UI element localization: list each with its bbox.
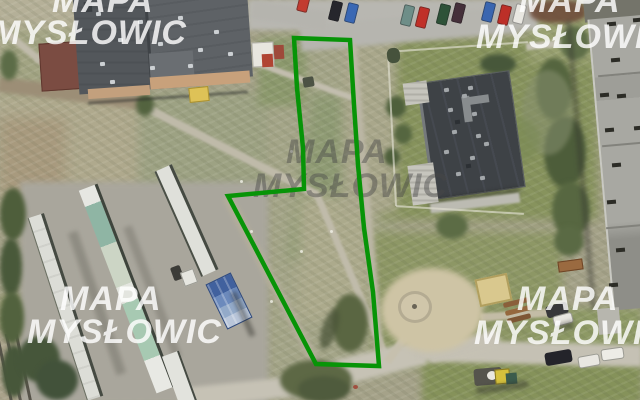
blue-shed-shadow [230, 291, 255, 337]
roof-vent [462, 94, 468, 99]
junk-shadow [476, 380, 528, 394]
tree [0, 50, 18, 80]
stone-dot [330, 230, 333, 233]
tree-in-parcel [332, 294, 368, 352]
tree-shadow [316, 307, 343, 352]
block-vent [607, 200, 616, 205]
parcel-green-streak [288, 91, 376, 268]
roof-vent [150, 66, 155, 70]
rail [0, 334, 13, 400]
tree [554, 226, 584, 256]
tree [0, 292, 24, 344]
scrub-center [138, 92, 273, 204]
block-vent [633, 18, 640, 23]
field-left-of-parcel [215, 192, 310, 400]
bush [394, 124, 412, 144]
watermark-center: MYSŁOWIC [253, 169, 448, 203]
block-vent [607, 22, 616, 27]
roof-vent [228, 52, 233, 56]
block-walkway [526, 37, 590, 51]
roof-vent-dark [455, 120, 461, 125]
roof-vent [118, 38, 123, 42]
road-bottom [178, 376, 302, 400]
parcel-interior-grass [268, 32, 393, 377]
yard-lane-shadow [68, 230, 126, 375]
stone-dot [270, 300, 273, 303]
complex-chimney [84, 2, 93, 13]
tree [560, 26, 590, 60]
footpath-playground-spur [384, 304, 431, 365]
watermark-bottom-left: MYSŁOWIC [27, 315, 222, 349]
footpath-neck-cross [253, 59, 353, 100]
tractor [170, 265, 184, 282]
garage-yard-gravel [20, 182, 268, 400]
watermark-top-right: MAPA [519, 0, 621, 18]
bush [386, 96, 406, 118]
stone-dot [300, 250, 303, 253]
block-vent [612, 163, 621, 168]
roof-vent [472, 112, 478, 117]
block-roof-seam [606, 221, 640, 229]
complex-roof-west [73, 0, 154, 94]
block-roof-top-dark [583, 0, 640, 23]
watermark-top-left: MYSŁOWIC [0, 16, 187, 50]
roof-vent [444, 88, 450, 93]
complex-roof-seam [144, 0, 153, 86]
block-vent [600, 93, 609, 98]
car-suv-dark [544, 349, 573, 366]
school-west-edge [416, 80, 435, 191]
car [344, 2, 360, 24]
roof-vent [100, 62, 105, 66]
white-shed [251, 41, 274, 67]
grass-topright [528, 0, 640, 64]
yellow-container [188, 86, 209, 103]
tree [0, 238, 22, 296]
tree-red-topright [530, 0, 586, 23]
school-roof-mark [461, 96, 473, 123]
complex-section-mid [149, 51, 195, 90]
scrub-below-parcel [280, 360, 352, 400]
block-roof-seam [598, 69, 640, 77]
roof-vent [452, 130, 458, 135]
roof-vent [198, 48, 203, 52]
grass-below-block [532, 308, 640, 356]
stone-dot [250, 230, 253, 233]
tree [436, 213, 468, 239]
block-vent [616, 248, 625, 253]
school-roof-mark [463, 94, 490, 106]
log [507, 313, 531, 324]
trailer [180, 268, 198, 287]
roof-vent [138, 20, 143, 24]
watermark-bottom-left: MAPA [60, 282, 162, 316]
block-vent [611, 58, 620, 63]
playground-sand [381, 268, 483, 352]
hedge-school-north [480, 54, 516, 74]
watermark-top-right: MYSŁOWIC [476, 20, 640, 54]
garage-row-e [162, 351, 198, 400]
dirt-road-west [0, 77, 146, 110]
roof-vent [444, 150, 450, 155]
footpath [34, 55, 75, 89]
school-roof [418, 70, 526, 200]
log [505, 305, 531, 316]
footpath-west-boundary [223, 194, 321, 366]
car [400, 4, 416, 27]
grass-above-tracks [0, 295, 62, 360]
roof-vent [214, 30, 219, 34]
dark-object-on-path [302, 76, 315, 88]
red-object [353, 385, 358, 389]
roof-vent [158, 42, 163, 46]
school-lawn [380, 38, 598, 220]
stone-ring-center [412, 304, 417, 309]
complex-south-shadow [88, 90, 248, 104]
track-ballast [0, 330, 36, 400]
tree [36, 360, 78, 400]
scrub-midleft [0, 95, 155, 210]
car [415, 6, 431, 29]
road-bottom [289, 339, 427, 397]
rail [5, 333, 22, 400]
footpath-diagonal-south [314, 194, 392, 364]
watermark-bottom-right: MYSŁOWIC [474, 316, 640, 350]
tree [0, 188, 26, 240]
watermark-top-left: MAPA [52, 0, 154, 18]
rail [15, 333, 32, 400]
complex-facade-tan [150, 71, 251, 90]
car [481, 1, 497, 23]
car [296, 0, 311, 13]
car-white [552, 312, 574, 328]
tree [2, 345, 26, 397]
van-dark [545, 301, 569, 318]
block-west-shadow [565, 20, 596, 309]
school-steps-west [407, 162, 438, 205]
roof-vent-dark [466, 164, 472, 169]
roof-vent [448, 108, 454, 113]
parcel-boundary [228, 38, 379, 366]
parking-asphalt [299, 7, 518, 52]
fence [387, 52, 397, 206]
tree [18, 336, 60, 382]
garage-row-a [28, 213, 103, 400]
bench [557, 258, 583, 272]
scrub-below-parcel [298, 376, 350, 400]
roof-vent [484, 142, 490, 147]
neck-grass-hump [258, 38, 306, 106]
parcel-pale-patch [298, 195, 373, 320]
school-sidewalk [430, 193, 521, 214]
car [328, 0, 344, 22]
red-shed [274, 45, 285, 60]
junk-pile [473, 367, 502, 386]
car-white [577, 353, 601, 369]
lawn-shade [460, 80, 490, 110]
bush [136, 94, 154, 116]
bush [384, 148, 400, 166]
roof-vent [470, 156, 476, 161]
footpath-to-block [480, 309, 550, 322]
ground-base [0, 0, 640, 400]
terrain-texture [0, 0, 640, 400]
parking-asphalt [251, 1, 328, 29]
roof-vent [456, 172, 462, 177]
watermark-center: MAPA [286, 135, 388, 169]
fence [396, 205, 524, 215]
car [497, 4, 513, 26]
footpath-diagonal-main [138, 101, 320, 199]
car [512, 3, 528, 25]
school-gate-bush [386, 47, 400, 63]
car [451, 2, 467, 24]
parcel-boundary-layer [0, 0, 640, 400]
dumpster-yellow [494, 368, 510, 384]
stone-ring [398, 291, 432, 323]
roof-vent [178, 16, 183, 20]
school-south-shadow [428, 187, 520, 209]
roof-vent [110, 80, 115, 84]
watermark-bottom-right: MAPA [517, 282, 619, 316]
road-bottom [414, 339, 640, 367]
tree [544, 116, 586, 188]
block-entry-wall [597, 307, 621, 335]
garage-row-c [154, 164, 218, 277]
block-roof [587, 13, 640, 310]
complex-facade-tan [88, 85, 151, 99]
block-vent [634, 126, 640, 131]
roof-vent [188, 64, 193, 68]
junk-bag-white [487, 371, 497, 380]
parking-asphalt [248, 0, 538, 30]
tree [536, 58, 572, 120]
complex-roof-east [145, 0, 253, 83]
roof-vent [96, 12, 101, 16]
block-vent [617, 94, 626, 99]
tree [552, 182, 590, 238]
grass-green-topleft [0, 28, 95, 103]
tree-bare [522, 70, 574, 155]
blue-shed [205, 272, 252, 329]
aerial-map[interactable]: MAPAMYSŁOWICMAPAMYSŁOWICMAPAMYSŁOWICMAPA… [0, 0, 640, 400]
fence [388, 41, 528, 53]
lawn-shade [498, 118, 540, 162]
roof-vent [476, 134, 482, 139]
playground-grass [372, 232, 562, 367]
dumpster-green [506, 373, 518, 385]
block-vent [609, 283, 618, 288]
sandbox [474, 273, 512, 307]
grass-pale-topleft [0, 0, 150, 115]
strip-east-of-parcel [342, 38, 397, 213]
block-vent [605, 128, 614, 133]
stone-dot [290, 150, 293, 153]
car [436, 3, 452, 26]
block-roof-seam [602, 139, 640, 147]
log [503, 297, 529, 308]
dirt-left [0, 118, 65, 193]
garage-row-b [79, 184, 175, 394]
roof-vent [468, 86, 474, 91]
school-steps-west [403, 80, 430, 105]
yard-lane-shadow [123, 225, 182, 359]
roof-vent [480, 176, 486, 181]
grass-bottom-right [422, 362, 640, 400]
footpath-east-boundary [349, 44, 385, 360]
shed-red-door [262, 54, 274, 68]
car-white [600, 346, 624, 361]
car-shadow [557, 320, 575, 332]
footpath [0, 21, 42, 63]
complex-roof-brown [38, 40, 91, 91]
road-bottom [427, 329, 501, 363]
stone-dot [240, 180, 243, 183]
